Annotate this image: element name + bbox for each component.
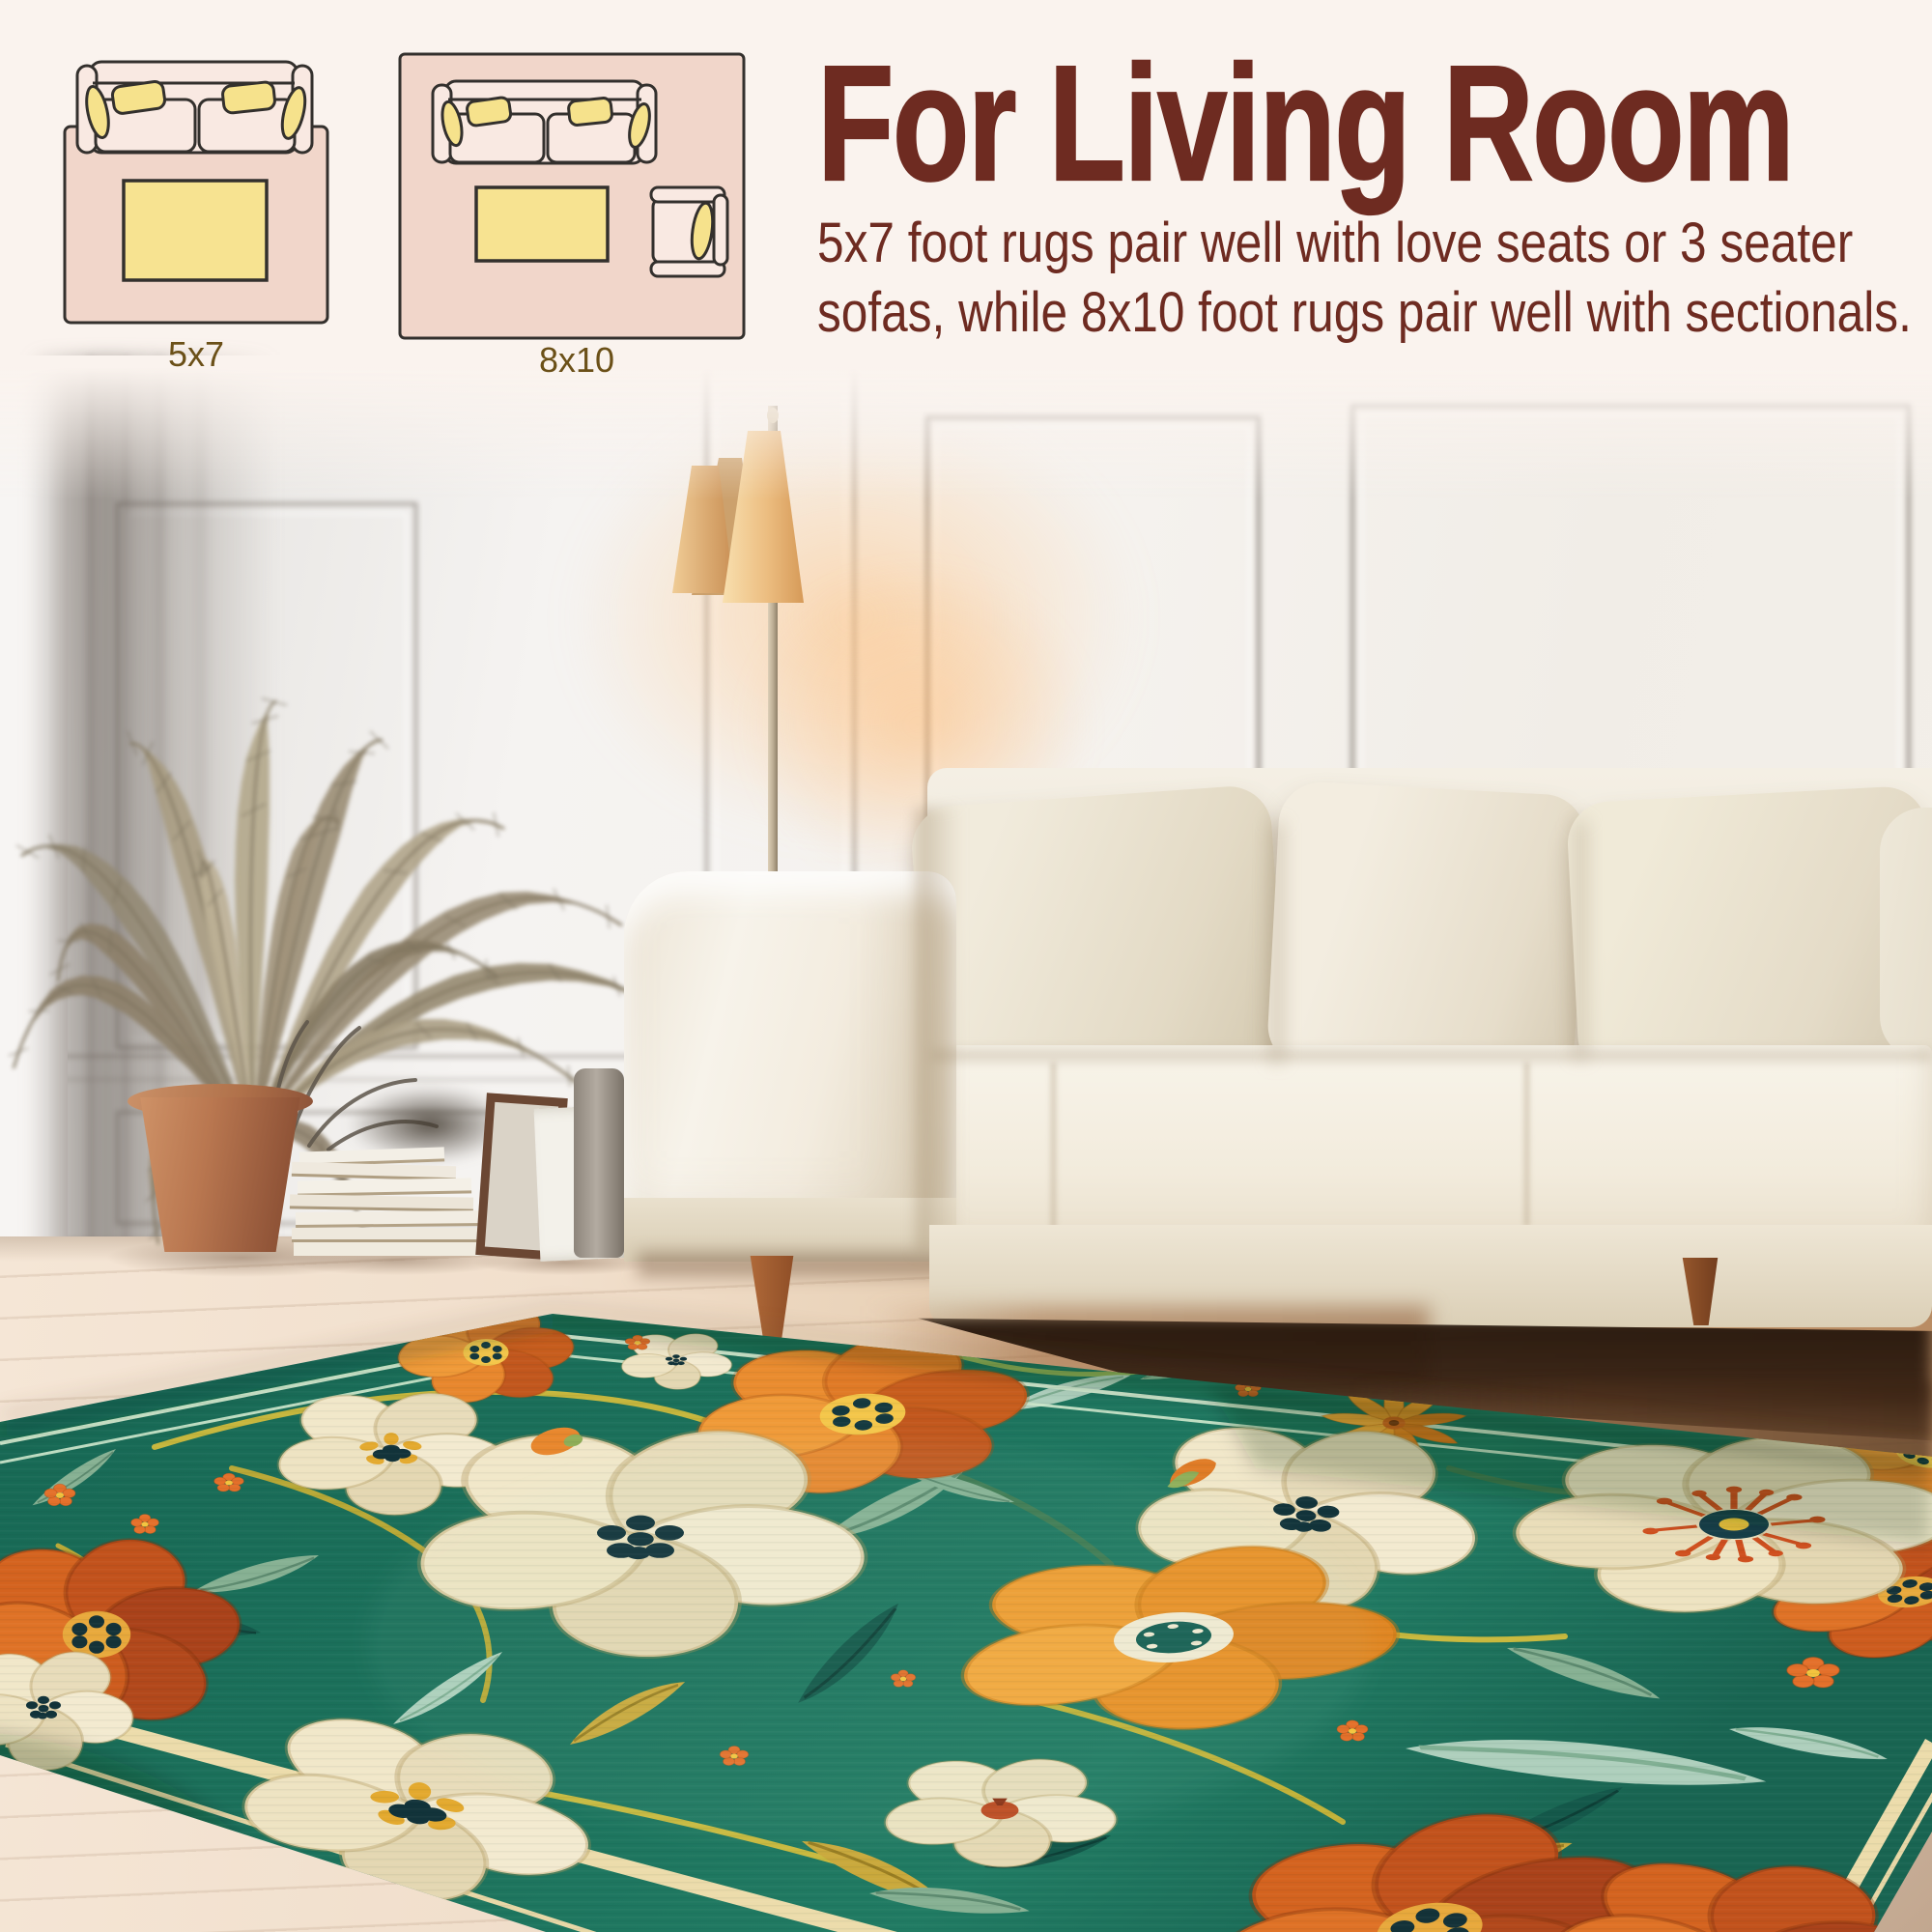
svg-text:5x7: 5x7 [168,334,224,374]
svg-text:8x10: 8x10 [539,340,614,380]
